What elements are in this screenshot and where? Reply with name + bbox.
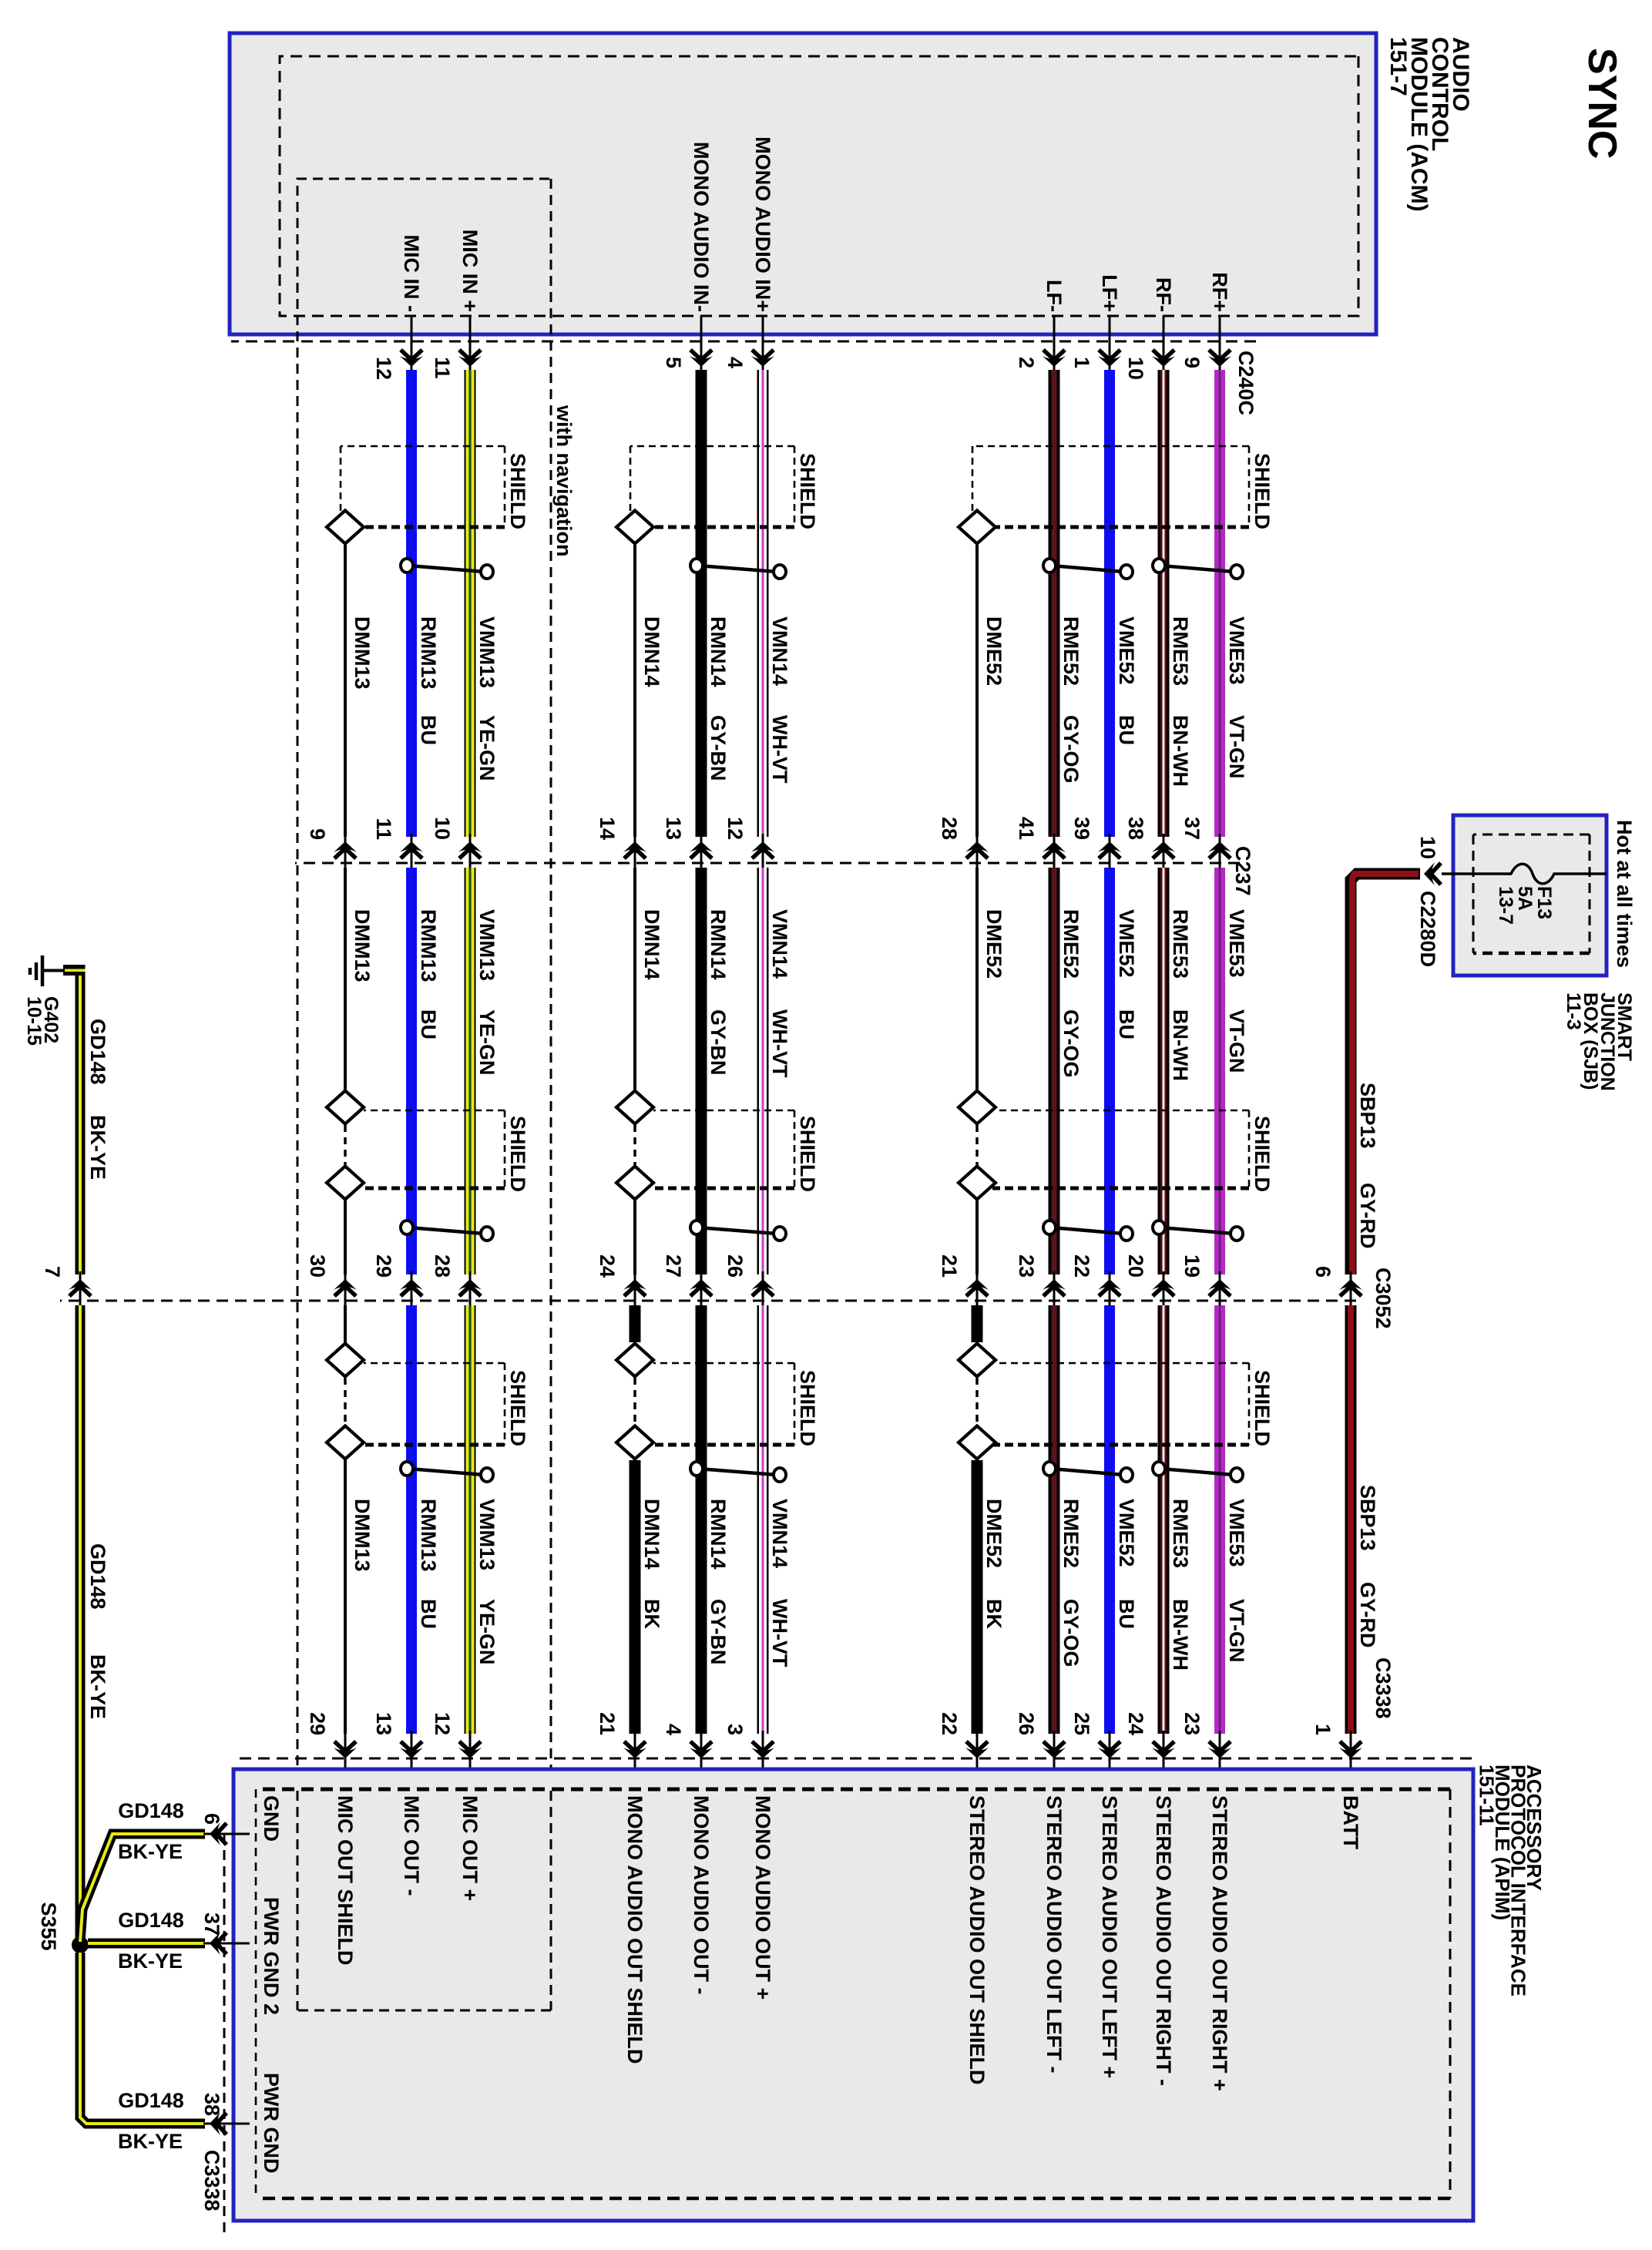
svg-text:STEREO AUDIO OUT LEFT -: STEREO AUDIO OUT LEFT -	[1043, 1795, 1066, 2074]
svg-text:Hot at all times: Hot at all times	[1613, 820, 1636, 968]
svg-text:29: 29	[372, 1254, 395, 1278]
svg-text:11: 11	[372, 818, 395, 840]
svg-text:21: 21	[938, 1254, 961, 1278]
svg-text:26: 26	[724, 1254, 747, 1278]
svg-text:4: 4	[662, 1724, 685, 1735]
svg-text:VT-GN: VT-GN	[1225, 715, 1248, 779]
svg-text:20: 20	[1124, 1254, 1147, 1278]
svg-text:DMM13: DMM13	[351, 1499, 374, 1572]
svg-text:5A: 5A	[1514, 886, 1536, 911]
svg-text:PWR GND: PWR GND	[260, 2073, 283, 2174]
svg-text:C3338: C3338	[200, 2150, 223, 2211]
svg-text:11-3: 11-3	[1563, 992, 1584, 1030]
svg-text:24: 24	[596, 1254, 619, 1278]
svg-text:MIC OUT -: MIC OUT -	[400, 1795, 423, 1896]
svg-text:SHIELD: SHIELD	[796, 1116, 819, 1192]
svg-text:VMN14: VMN14	[768, 909, 791, 979]
svg-text:30: 30	[306, 1254, 329, 1278]
svg-text:BN-WH: BN-WH	[1169, 715, 1192, 787]
svg-text:GY-OG: GY-OG	[1059, 715, 1083, 784]
svg-text:6: 6	[1311, 1266, 1335, 1278]
svg-text:MIC IN +: MIC IN +	[458, 230, 482, 312]
svg-text:29: 29	[306, 1712, 329, 1735]
svg-text:10-15: 10-15	[23, 996, 45, 1046]
svg-text:37: 37	[200, 1912, 223, 1936]
svg-text:RME53: RME53	[1169, 909, 1192, 979]
svg-text:151-7: 151-7	[1385, 37, 1411, 96]
svg-text:1: 1	[1311, 1724, 1335, 1735]
svg-text:RMN14: RMN14	[707, 616, 730, 687]
svg-text:22: 22	[1070, 1254, 1093, 1278]
svg-text:9: 9	[1180, 357, 1204, 368]
svg-text:37: 37	[1180, 817, 1204, 840]
svg-text:DME52: DME52	[982, 1499, 1006, 1568]
svg-text:GY-OG: GY-OG	[1059, 1009, 1083, 1078]
svg-text:3: 3	[724, 1724, 747, 1735]
svg-text:WH-VT: WH-VT	[768, 1009, 791, 1078]
svg-text:DME52: DME52	[982, 616, 1006, 686]
svg-text:DMN14: DMN14	[640, 1499, 663, 1570]
svg-text:RME53: RME53	[1169, 616, 1192, 686]
svg-text:SHIELD: SHIELD	[506, 1370, 529, 1446]
svg-text:C3338: C3338	[1372, 1657, 1395, 1719]
svg-text:VME53: VME53	[1225, 616, 1248, 685]
svg-text:2: 2	[1015, 357, 1038, 368]
svg-text:GND: GND	[260, 1795, 283, 1842]
svg-text:YE-GN: YE-GN	[475, 1009, 499, 1076]
svg-text:VMM13: VMM13	[475, 909, 499, 981]
svg-text:SHIELD: SHIELD	[506, 453, 529, 529]
svg-text:9: 9	[306, 828, 329, 840]
svg-text:GY-OG: GY-OG	[1059, 1599, 1083, 1667]
svg-text:23: 23	[1015, 1254, 1038, 1278]
svg-text:6: 6	[200, 1813, 223, 1825]
svg-text:MONO AUDIO IN+: MONO AUDIO IN+	[751, 136, 774, 312]
svg-text:RMN14: RMN14	[707, 909, 730, 980]
svg-text:BK: BK	[982, 1599, 1006, 1629]
svg-text:BU: BU	[417, 1009, 440, 1039]
svg-text:24: 24	[1124, 1712, 1147, 1735]
svg-text:STEREO AUDIO OUT LEFT +: STEREO AUDIO OUT LEFT +	[1098, 1795, 1121, 2078]
svg-text:151-11: 151-11	[1476, 1765, 1499, 1826]
svg-text:C237: C237	[1231, 846, 1254, 896]
svg-text:LF+: LF+	[1098, 274, 1121, 312]
svg-text:19: 19	[1180, 1254, 1204, 1278]
svg-text:RMM13: RMM13	[417, 616, 440, 690]
svg-text:BK: BK	[640, 1599, 663, 1629]
svg-text:RMM13: RMM13	[417, 909, 440, 982]
svg-text:BU: BU	[1115, 1599, 1138, 1629]
svg-text:SBP13: SBP13	[1356, 1485, 1379, 1551]
svg-text:21: 21	[596, 1712, 619, 1735]
svg-text:GY-BN: GY-BN	[707, 1009, 730, 1076]
svg-text:13: 13	[372, 1712, 395, 1735]
svg-text:GY-BN: GY-BN	[707, 1599, 730, 1665]
svg-text:DMM13: DMM13	[351, 616, 374, 690]
svg-text:38: 38	[200, 2093, 223, 2116]
svg-text:PWR GND 2: PWR GND 2	[260, 1897, 283, 2015]
svg-text:MIC OUT SHIELD: MIC OUT SHIELD	[334, 1795, 357, 1966]
svg-text:RME52: RME52	[1059, 909, 1083, 979]
svg-text:GD148: GD148	[118, 2089, 184, 2112]
svg-text:BN-WH: BN-WH	[1169, 1599, 1192, 1671]
svg-text:STEREO AUDIO OUT RIGHT +: STEREO AUDIO OUT RIGHT +	[1208, 1795, 1231, 2091]
svg-text:39: 39	[1070, 817, 1093, 840]
svg-text:BK-YE: BK-YE	[86, 1115, 109, 1180]
svg-text:C2280D: C2280D	[1416, 891, 1439, 967]
svg-text:with navigation: with navigation	[552, 405, 576, 557]
svg-text:GD148: GD148	[86, 1019, 109, 1085]
svg-text:LF-: LF-	[1043, 280, 1066, 312]
svg-text:MONO AUDIO OUT -: MONO AUDIO OUT -	[690, 1795, 713, 1994]
svg-text:SYNC: SYNC	[1580, 48, 1624, 159]
svg-text:VME53: VME53	[1225, 909, 1248, 978]
svg-text:GD148: GD148	[118, 1799, 184, 1822]
svg-text:BU: BU	[417, 715, 440, 745]
svg-text:23: 23	[1180, 1712, 1204, 1735]
svg-text:GY-BN: GY-BN	[707, 715, 730, 781]
svg-text:RME52: RME52	[1059, 616, 1083, 686]
svg-text:YE-GN: YE-GN	[475, 715, 499, 781]
svg-text:BK-YE: BK-YE	[118, 1840, 183, 1863]
svg-text:C240C: C240C	[1234, 351, 1257, 415]
svg-text:WH-VT: WH-VT	[768, 715, 791, 784]
svg-text:BU: BU	[1115, 715, 1138, 745]
svg-text:VME52: VME52	[1115, 1499, 1138, 1567]
svg-text:VT-GN: VT-GN	[1225, 1599, 1248, 1663]
svg-text:MONO AUDIO IN-: MONO AUDIO IN-	[690, 142, 713, 312]
svg-text:MIC OUT +: MIC OUT +	[458, 1795, 482, 1901]
svg-text:VME52: VME52	[1115, 616, 1138, 685]
svg-text:BK-YE: BK-YE	[118, 2130, 183, 2153]
svg-text:VT-GN: VT-GN	[1225, 1009, 1248, 1073]
svg-text:SHIELD: SHIELD	[796, 1370, 819, 1446]
svg-text:1: 1	[1070, 357, 1093, 368]
svg-text:VMM13: VMM13	[475, 1499, 499, 1570]
svg-text:MONO AUDIO OUT SHIELD: MONO AUDIO OUT SHIELD	[623, 1795, 646, 2064]
svg-text:RMM13: RMM13	[417, 1499, 440, 1572]
svg-text:41: 41	[1015, 817, 1038, 840]
svg-text:BU: BU	[417, 1599, 440, 1629]
svg-text:26: 26	[1015, 1712, 1038, 1735]
svg-text:VMN14: VMN14	[768, 1499, 791, 1568]
svg-text:GY-RD: GY-RD	[1356, 1183, 1379, 1249]
svg-text:10: 10	[431, 817, 454, 840]
svg-text:C3052: C3052	[1372, 1268, 1395, 1329]
svg-text:SBP13: SBP13	[1356, 1083, 1379, 1149]
svg-text:DME52: DME52	[982, 909, 1006, 979]
svg-text:BN-WH: BN-WH	[1169, 1009, 1192, 1081]
svg-text:S355: S355	[37, 1902, 60, 1950]
svg-text:MONO AUDIO OUT +: MONO AUDIO OUT +	[751, 1795, 774, 2000]
svg-text:RME52: RME52	[1059, 1499, 1083, 1568]
svg-text:VME52: VME52	[1115, 909, 1138, 978]
svg-text:RF-: RF-	[1152, 277, 1175, 312]
svg-text:SHIELD: SHIELD	[1251, 1370, 1274, 1446]
svg-text:4: 4	[724, 357, 747, 368]
svg-text:28: 28	[938, 817, 961, 840]
svg-text:RMN14: RMN14	[707, 1499, 730, 1570]
svg-text:12: 12	[724, 817, 747, 840]
svg-text:SHIELD: SHIELD	[1251, 1116, 1274, 1192]
svg-text:SHIELD: SHIELD	[506, 1116, 529, 1192]
svg-text:SHIELD: SHIELD	[796, 453, 819, 529]
svg-text:DMN14: DMN14	[640, 909, 663, 980]
svg-text:11: 11	[431, 357, 454, 379]
svg-text:BATT: BATT	[1339, 1795, 1362, 1849]
svg-text:VME53: VME53	[1225, 1499, 1248, 1567]
svg-text:5: 5	[662, 357, 685, 368]
svg-text:VMN14: VMN14	[768, 616, 791, 686]
svg-text:10: 10	[1416, 836, 1439, 859]
svg-text:GD148: GD148	[86, 1543, 109, 1610]
svg-text:GD148: GD148	[118, 1909, 184, 1932]
svg-text:25: 25	[1070, 1712, 1093, 1735]
svg-text:SHIELD: SHIELD	[1251, 453, 1274, 529]
svg-text:14: 14	[596, 817, 619, 840]
svg-text:28: 28	[431, 1254, 454, 1278]
svg-text:13: 13	[662, 817, 685, 840]
svg-text:YE-GN: YE-GN	[475, 1599, 499, 1665]
svg-text:STEREO AUDIO OUT RIGHT -: STEREO AUDIO OUT RIGHT -	[1152, 1795, 1175, 2086]
svg-text:MIC IN -: MIC IN -	[400, 235, 423, 313]
svg-text:27: 27	[662, 1254, 685, 1278]
svg-text:38: 38	[1124, 817, 1147, 840]
svg-text:12: 12	[431, 1712, 454, 1735]
svg-text:VMM13: VMM13	[475, 616, 499, 688]
svg-text:BK-YE: BK-YE	[118, 1949, 183, 1973]
svg-text:10: 10	[1124, 357, 1147, 380]
svg-text:BU: BU	[1115, 1009, 1138, 1039]
svg-text:DMM13: DMM13	[351, 909, 374, 982]
svg-text:DMN14: DMN14	[640, 616, 663, 687]
svg-text:RF+: RF+	[1208, 272, 1231, 312]
svg-text:RME53: RME53	[1169, 1499, 1192, 1568]
svg-text:WH-VT: WH-VT	[768, 1599, 791, 1667]
svg-text:GY-RD: GY-RD	[1356, 1582, 1379, 1648]
svg-text:12: 12	[372, 357, 395, 380]
svg-text:13-7: 13-7	[1495, 886, 1516, 925]
svg-text:BK-YE: BK-YE	[86, 1654, 109, 1719]
svg-text:STEREO AUDIO OUT SHIELD: STEREO AUDIO OUT SHIELD	[965, 1795, 989, 2085]
svg-text:22: 22	[938, 1712, 961, 1735]
svg-text:F13: F13	[1533, 886, 1555, 919]
svg-text:7: 7	[41, 1266, 64, 1278]
